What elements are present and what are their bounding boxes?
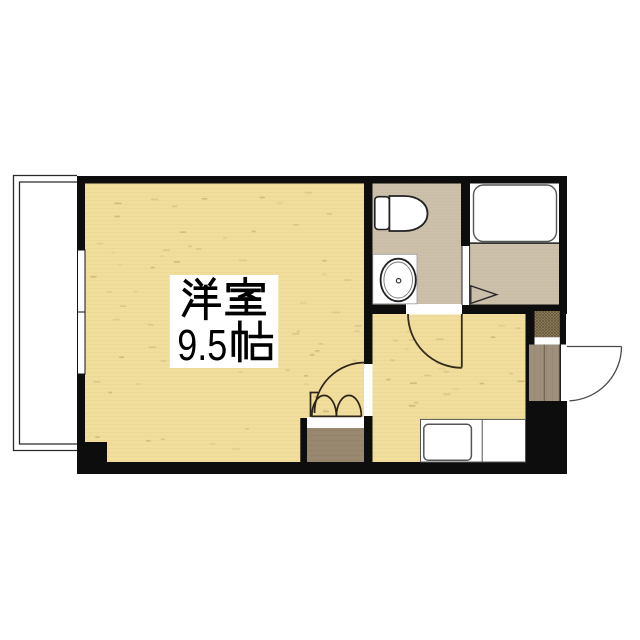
svg-text:9.5: 9.5 [177,321,227,370]
